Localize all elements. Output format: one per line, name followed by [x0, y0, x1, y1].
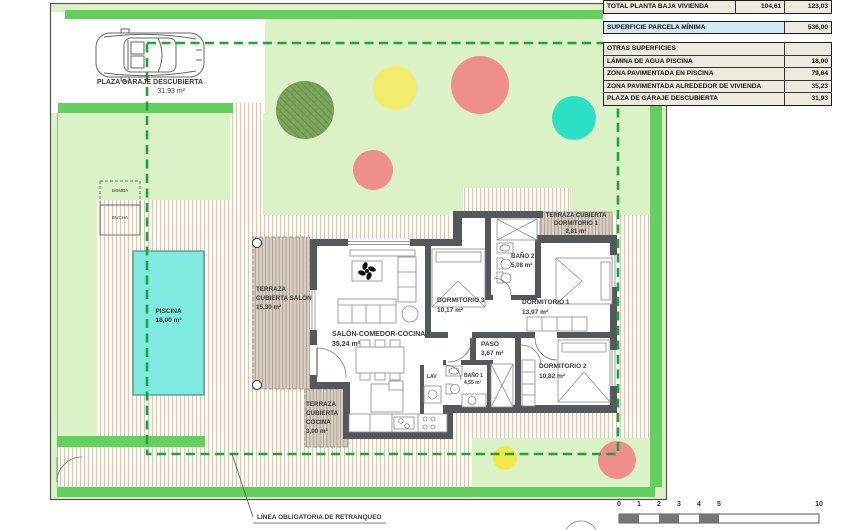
- terrace-living-label-2: CUBIERTA SALÓN: [256, 296, 312, 302]
- bedroom2-area: 10,82 m²: [539, 374, 565, 381]
- terrace-kitchen-label-1: TERRAZA: [306, 402, 336, 408]
- bed-dorm1: [556, 258, 612, 304]
- terrace-living-label-1: TERRAZA: [256, 287, 286, 293]
- surfaces-tables: TOTAL PLANTA BAJA VIVIENDA 104,61 123,03…: [603, 0, 832, 106]
- parcela-table: SUPERFICIE PARCELA MÍNIMA 536,00: [603, 21, 832, 35]
- bed-dorm2: [558, 340, 610, 402]
- otras-header: OTRAS SUPERFICIES: [604, 43, 785, 55]
- bath1-label: BAÑO 1: [464, 374, 483, 379]
- bedroom3-area: 10,17 m²: [437, 308, 463, 315]
- terrace-living-area: 15,30 m²: [256, 305, 281, 311]
- terrace-living: [253, 237, 310, 389]
- living-room-area: 35,24 m²: [332, 341, 360, 348]
- parcela-value: 536,00: [785, 22, 831, 34]
- total-table: TOTAL PLANTA BAJA VIVIENDA 104,61 123,03: [603, 0, 832, 14]
- total-value-2: 123,03: [785, 1, 831, 13]
- closet-dorm2: [522, 360, 535, 406]
- column-bottom: [253, 381, 262, 390]
- bedroom2-label: DORMITORIO 2: [539, 364, 587, 371]
- terrace-bedroom1-label-2: DORMITORIO 1: [536, 221, 616, 227]
- hedge-pool-south: [57, 436, 205, 447]
- hedge-top: [65, 10, 650, 19]
- tree-yellow: [373, 66, 417, 110]
- bath2-area: 5,08 m²: [511, 263, 532, 269]
- table-row: ZONA PAVIMENTADA EN PISCINA 79,64: [603, 68, 832, 81]
- north-symbol: [564, 521, 598, 530]
- hedge-garage-south: [58, 103, 233, 113]
- floor-plan-sheet: { "plan": { "garage": {"label": "PLAZA G…: [0, 0, 850, 530]
- pool-area: 18,00 m²: [133, 318, 204, 325]
- bedroom3-label: DORMITORIO 3: [437, 298, 485, 305]
- dining-table: [356, 347, 404, 373]
- sideboard: [350, 250, 415, 256]
- living-room-label: SALÓN-COMEDOR-COCINA: [332, 331, 425, 338]
- shower-shaft: [491, 364, 513, 407]
- bath2-label: BAÑO 2: [511, 254, 534, 260]
- terrace-bedroom1-area: 2,81 m²: [536, 229, 616, 235]
- hall-label: PASO: [481, 342, 499, 349]
- ducha-label: DUCHA: [100, 216, 140, 221]
- tree-dark-green: [276, 81, 334, 139]
- table-row: LÁMINA DE AGUA PISCINA 18,00: [603, 56, 832, 69]
- table-row: PLAZA DE GARAJE DESCUBIERTA 31,93: [603, 93, 832, 105]
- tree-teal: [552, 96, 596, 140]
- pool-label: PISCINA: [133, 309, 204, 316]
- otras-table: OTRAS SUPERFICIES LÁMINA DE AGUA PISCINA…: [603, 42, 832, 106]
- table-row: ZONA PAVIMENTADA ALREDEDOR DE VIVIENDA 3…: [603, 81, 832, 94]
- bedroom1-label: DORMITORIO 1: [522, 300, 570, 307]
- terrace-bedroom1-label-1: TERRAZA CUBIERTA: [536, 213, 616, 219]
- total-label: TOTAL PLANTA BAJA VIVIENDA: [604, 1, 736, 13]
- sink: [394, 417, 414, 429]
- laundry-label: LAV: [427, 375, 437, 380]
- column-top: [253, 239, 262, 248]
- tree-salmon-small: [353, 150, 393, 190]
- scale-tick-3: 3: [671, 501, 687, 508]
- hedge-bottom: [57, 487, 655, 497]
- scale-bar: [619, 514, 819, 523]
- scale-tick-4: 4: [691, 501, 707, 508]
- washing-machine: [424, 386, 441, 403]
- garage-area: 31,93 m²: [80, 88, 185, 95]
- side-table: [402, 306, 418, 322]
- terrace-kitchen: [305, 389, 348, 447]
- shelving: [398, 257, 416, 302]
- scale-tick-1: 1: [631, 501, 647, 508]
- bedroom1-area: 13,97 m²: [522, 310, 548, 317]
- hall-area: 3,67 m²: [481, 351, 503, 358]
- vent-closet: [497, 219, 537, 240]
- sofa: [338, 299, 396, 323]
- scale-tick-10: 10: [811, 501, 827, 508]
- scale-tick-5: 5: [711, 501, 727, 508]
- terrace-kitchen-label-2: CUBIERTA: [306, 411, 338, 417]
- terrace-kitchen-area: 3,00 m²: [306, 429, 328, 435]
- terrace-kitchen-label-3: COCINA: [306, 420, 331, 426]
- total-value-1: 104,61: [736, 1, 785, 13]
- parcela-label: SUPERFICIE PARCELA MÍNIMA: [604, 22, 785, 34]
- bomba-label: BOMBA: [100, 189, 140, 194]
- tree-salmon-large: [451, 56, 509, 114]
- garage-area: [50, 12, 265, 113]
- garage-label: PLAZA GARAJE DESCUBIERTA: [75, 79, 225, 86]
- scale-tick-2: 2: [651, 501, 667, 508]
- tree-yellow-bottom: [493, 446, 517, 470]
- scale-tick-0: 0: [611, 501, 627, 508]
- setback-label: LÍNEA OBLIGATORIA DE RETRANQUEO: [257, 515, 382, 522]
- bath1-area: 4,55 m²: [464, 381, 481, 386]
